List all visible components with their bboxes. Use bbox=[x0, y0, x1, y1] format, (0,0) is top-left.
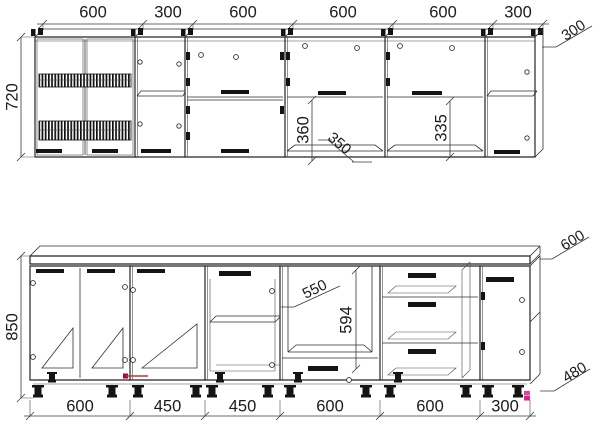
dim-upper-width-4: 600 bbox=[329, 3, 357, 21]
dim-niche-height: 335 bbox=[432, 114, 450, 142]
door-handle bbox=[318, 91, 346, 95]
door-handle bbox=[494, 150, 520, 154]
hinge-icon bbox=[186, 78, 190, 86]
hinge-icon bbox=[186, 52, 190, 60]
hinge-icon bbox=[481, 342, 485, 350]
dim-upper-width-1: 600 bbox=[79, 3, 107, 21]
dim-upper-width-2: 300 bbox=[154, 3, 182, 21]
magenta-marker bbox=[524, 396, 530, 401]
background bbox=[0, 0, 600, 434]
drawer-handle bbox=[408, 349, 436, 354]
dim-upper-width-6: 300 bbox=[504, 3, 532, 21]
dim-open-niche-height: 360 bbox=[294, 116, 312, 144]
dim-lower-width-6: 300 bbox=[491, 397, 519, 415]
kitchen-drawing-page: 600 300 600 600 600 300 720 bbox=[0, 0, 600, 434]
dim-upper-width-3: 600 bbox=[229, 3, 257, 21]
dim-lower-height: 850 bbox=[3, 313, 21, 341]
hinge-icon bbox=[186, 106, 190, 114]
hinge-icon bbox=[386, 78, 390, 86]
door-handle bbox=[221, 149, 249, 153]
door-handle bbox=[87, 269, 115, 273]
dish-rack-lower bbox=[39, 121, 131, 140]
door-handle bbox=[92, 149, 118, 153]
door-handle bbox=[221, 90, 249, 94]
door-handle bbox=[36, 269, 64, 273]
dim-lower-width-1: 600 bbox=[66, 397, 94, 415]
dim-lower-width-5: 600 bbox=[416, 397, 444, 415]
dim-upper-height: 720 bbox=[3, 83, 21, 111]
door-handle bbox=[141, 149, 171, 153]
drawer-handle bbox=[408, 273, 436, 278]
drawer-handle bbox=[308, 366, 338, 371]
hinge-icon bbox=[286, 78, 290, 86]
dish-rack-upper bbox=[39, 74, 131, 87]
door-handle bbox=[137, 269, 165, 273]
dim-lower-width-3: 450 bbox=[229, 397, 257, 415]
door-handle bbox=[219, 271, 251, 276]
door-handle bbox=[486, 277, 514, 282]
hinge-icon bbox=[286, 52, 290, 60]
dim-upper-width-5: 600 bbox=[429, 3, 457, 21]
kitchen-cabinet-technical-drawing: 600 300 600 600 600 300 720 bbox=[0, 0, 600, 434]
magenta-marker bbox=[524, 391, 530, 396]
hinge-icon bbox=[386, 52, 390, 60]
hinge-icon bbox=[481, 292, 485, 300]
dim-lower-width-4: 600 bbox=[316, 397, 344, 415]
door-handle bbox=[412, 91, 442, 95]
door-handle bbox=[36, 149, 62, 153]
dim-lower-width-2: 450 bbox=[154, 397, 182, 415]
hinge-icon bbox=[186, 132, 190, 140]
hinge-icon bbox=[280, 106, 284, 114]
drawer-handle bbox=[408, 302, 436, 307]
hinge-icon bbox=[280, 52, 284, 60]
dim-oven-niche-height: 594 bbox=[337, 306, 355, 334]
